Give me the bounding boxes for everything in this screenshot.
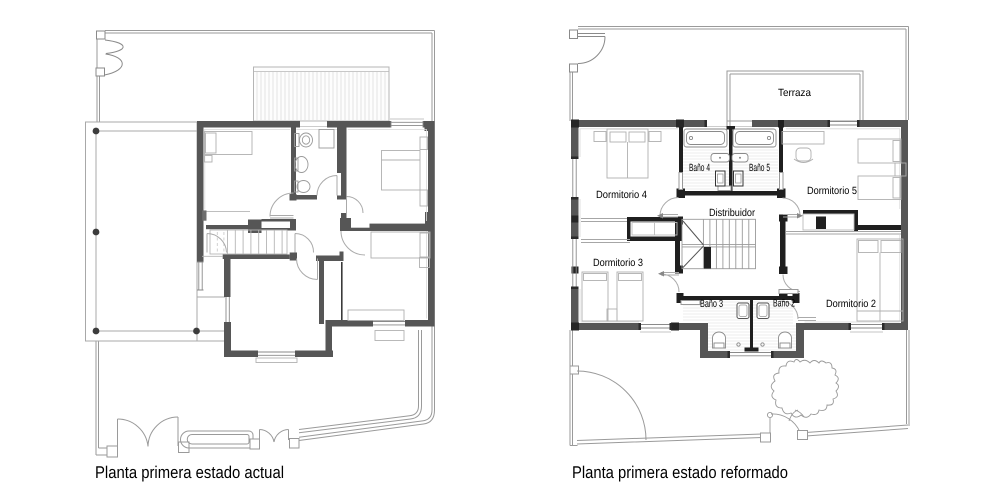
svg-text:Baño 4: Baño 4 bbox=[689, 162, 710, 174]
svg-text:Baño 2: Baño 2 bbox=[773, 298, 795, 310]
svg-text:Dormitorio 5: Dormitorio 5 bbox=[807, 185, 857, 197]
svg-text:Planta primera estado reformad: Planta primera estado reformado bbox=[572, 463, 788, 482]
svg-text:Distribuidor: Distribuidor bbox=[709, 207, 755, 219]
svg-text:Baño 3: Baño 3 bbox=[700, 298, 723, 310]
svg-text:Dormitorio 2: Dormitorio 2 bbox=[826, 298, 876, 310]
svg-text:Baño 5: Baño 5 bbox=[749, 162, 770, 174]
svg-text:Dormitorio 4: Dormitorio 4 bbox=[596, 189, 647, 201]
svg-text:Terraza: Terraza bbox=[778, 87, 811, 99]
svg-text:Dormitorio 3: Dormitorio 3 bbox=[593, 257, 643, 269]
svg-text:Planta primera estado actual: Planta primera estado actual bbox=[95, 463, 284, 482]
